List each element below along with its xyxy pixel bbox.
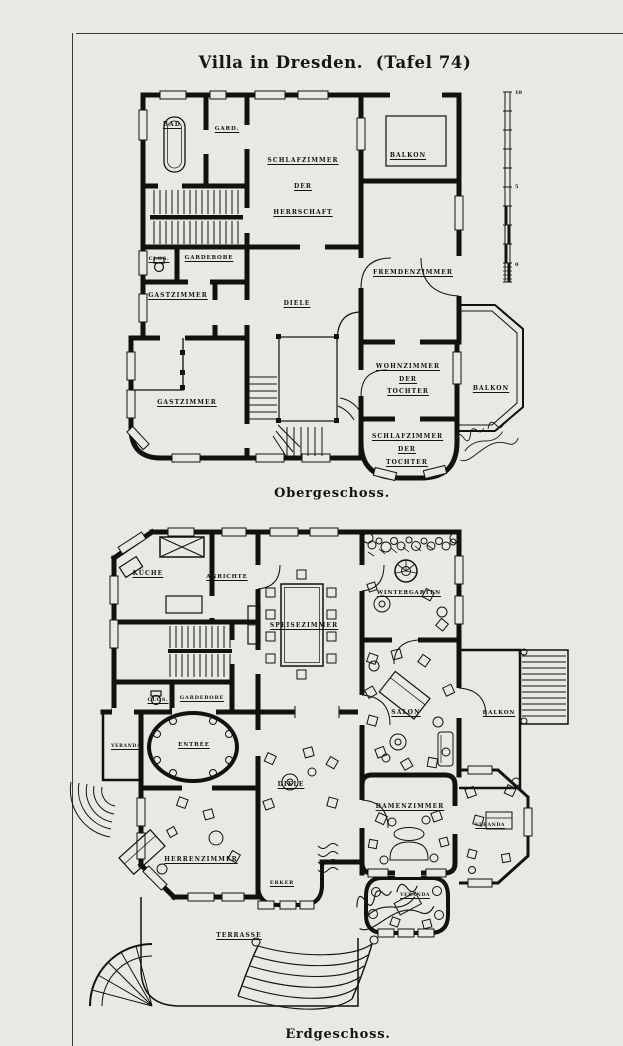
og-partition [131, 338, 185, 390]
og-caption: Obergeschoss. [252, 486, 412, 501]
book-plate: Villa in Dresden. (Tafel 74) [0, 0, 623, 1046]
og-stairs-hall [150, 190, 243, 244]
og-room-label-diele: Diele [272, 299, 322, 309]
eg-room-label-garderobe: Garderobe [175, 694, 229, 703]
architect-signature-og [452, 416, 520, 462]
og-room-label-schlafzimmer-herrschaft: Schlafzimmer der Herrschaft [257, 148, 349, 226]
eg-room-label-wintergarten: Wintergarten [371, 589, 447, 598]
eg-plan [70, 528, 568, 1009]
og-room-label-gastzimmer-1: Gastzimmer [143, 291, 213, 301]
eg-room-label-damenzimmer: Damenzimmer [370, 802, 450, 812]
scale-mark-mid: 5 [515, 184, 518, 190]
eg-room-label-speisezimmer: Speisezimmer [264, 621, 344, 631]
eg-room-label-herrenzimmer: Herrenzimmer [159, 855, 243, 865]
eg-stairs-hall [168, 626, 232, 677]
eg-room-label-entree: Entrée [172, 741, 216, 750]
eg-garden-stairs [238, 936, 378, 1009]
eg-diele-furniture [263, 747, 338, 873]
eg-room-label-diele: Diele [269, 780, 313, 790]
scale-bar [503, 92, 512, 282]
eg-room-label-veranda-west: Veranda [108, 743, 144, 751]
eg-room-label-balkon: Balkon [476, 709, 522, 718]
eg-caption: Erdgeschoss. [258, 1027, 418, 1042]
og-stairs-diele [249, 312, 361, 456]
og-room-label-garderobe: Garderobe [179, 254, 239, 263]
eg-room-label-salon: Salon [384, 708, 428, 718]
eg-room-label-erker: Erker [265, 879, 299, 888]
eg-wintergarten-plants [363, 533, 460, 631]
eg-room-label-clos: Clos. [144, 696, 172, 705]
eg-room-label-terrasse: Terrasse [209, 931, 269, 941]
og-room-label-bad: Bad [147, 120, 197, 130]
scale-mark-bottom: 0 [515, 262, 518, 268]
eg-west-steps [70, 782, 115, 837]
eg-terrace-corner-pavilion [90, 944, 152, 1006]
eg-room-label-veranda-sued: Veranda [393, 892, 437, 900]
eg-room-label-veranda-ost: Veranda [468, 822, 512, 830]
eg-room-label-kueche: Küche [123, 569, 173, 579]
og-room-label-schlafzimmer-tochter: Schlafzimmer der Tochter [372, 430, 442, 469]
og-room-label-balkon-oben: Balkon [378, 151, 438, 161]
og-room-label-balkon-seite: Balkon [466, 384, 516, 394]
og-room-label-gastzimmer-2: Gastzimmer [152, 398, 222, 408]
eg-damenzimmer-furniture [368, 811, 449, 864]
og-side-balcony [459, 305, 523, 431]
og-room-label-wohnzimmer-tochter: Wohnzimmer der Tochter [375, 361, 441, 399]
scale-mark-top: 10 [515, 90, 522, 96]
eg-terrace [141, 897, 358, 1006]
og-room-label-clos: Clos. [144, 255, 174, 264]
og-room-label-gard: Gard. [207, 125, 247, 134]
eg-room-label-anrichte: Anrichte [201, 573, 253, 582]
og-room-label-fremdenzimmer: Fremdenzimmer [368, 268, 458, 278]
